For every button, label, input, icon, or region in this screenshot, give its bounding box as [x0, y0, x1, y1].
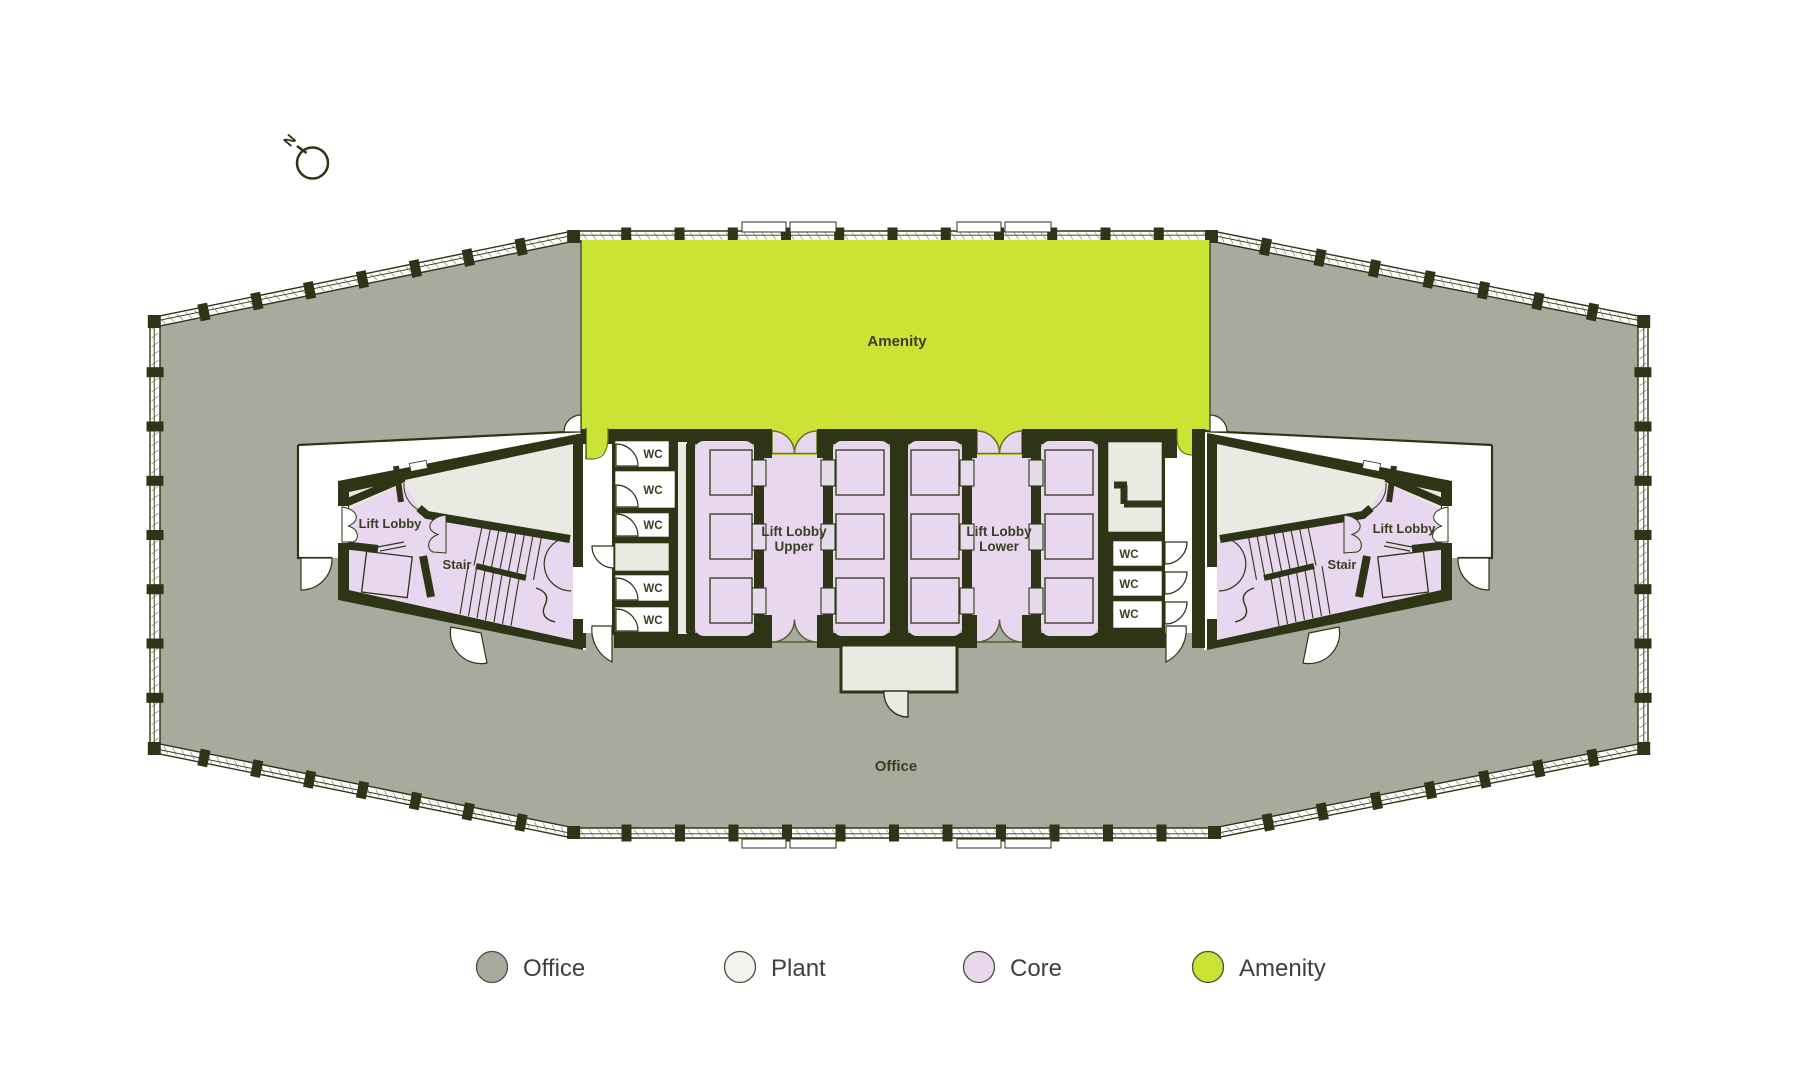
svg-text:WC: WC [643, 583, 662, 595]
svg-text:Stair: Stair [1328, 557, 1357, 572]
svg-text:WC: WC [1119, 549, 1138, 561]
svg-text:Lift Lobby: Lift Lobby [966, 524, 1032, 539]
svg-text:Amenity: Amenity [867, 333, 927, 350]
svg-text:Stair: Stair [443, 557, 472, 572]
svg-text:Amenity: Amenity [1239, 955, 1326, 982]
svg-text:WC: WC [1119, 609, 1138, 621]
svg-text:Core: Core [1010, 955, 1062, 982]
svg-text:WC: WC [643, 520, 662, 532]
svg-text:Lower: Lower [979, 539, 1020, 554]
svg-text:Lift Lobby: Lift Lobby [761, 524, 827, 539]
svg-text:WC: WC [1119, 579, 1138, 591]
svg-text:WC: WC [643, 485, 662, 497]
svg-text:WC: WC [643, 449, 662, 461]
svg-text:Lift Lobby: Lift Lobby [359, 516, 423, 531]
svg-text:Upper: Upper [774, 539, 814, 554]
svg-text:WC: WC [643, 615, 662, 627]
svg-text:Plant: Plant [771, 955, 826, 982]
svg-text:Office: Office [875, 758, 918, 775]
svg-text:Lift Lobby: Lift Lobby [1373, 521, 1437, 536]
svg-text:Office: Office [523, 955, 585, 982]
